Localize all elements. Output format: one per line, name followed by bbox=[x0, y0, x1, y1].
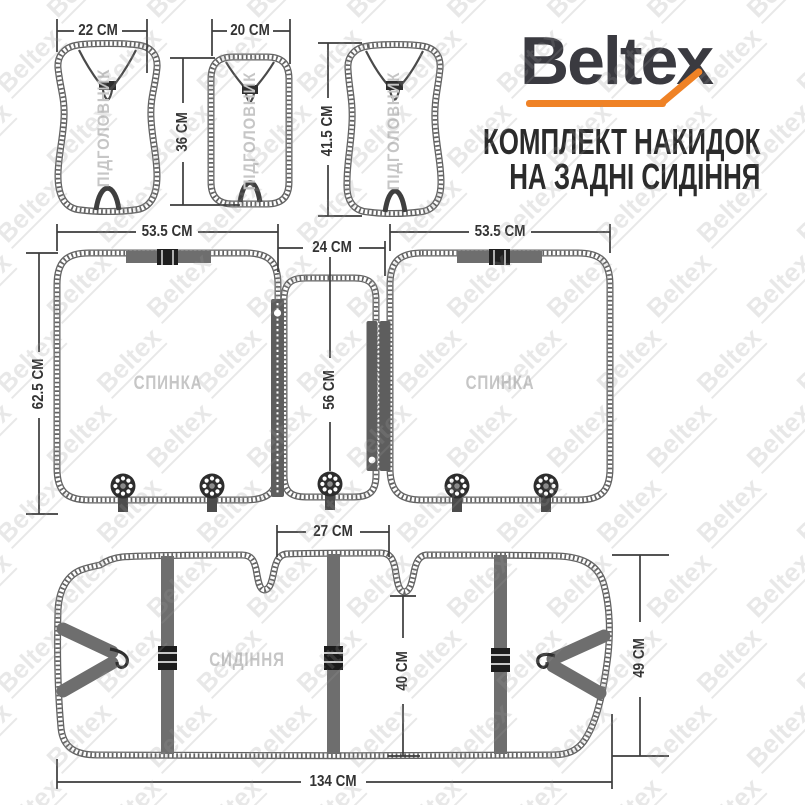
product-title: КОМПЛЕКТ НАКИДОК НА ЗАДНІ СИДІННЯ bbox=[375, 124, 760, 194]
label-layer: 22 CM 20 CM 36 CM 41.5 CM 53.5 CM 24 CM … bbox=[0, 0, 805, 805]
logo-underline-swoosh bbox=[526, 100, 666, 107]
product-dimension-diagram: 22 CM 20 CM 36 CM 41.5 CM 53.5 CM 24 CM … bbox=[0, 0, 805, 805]
seat-label: СИДІННЯ bbox=[209, 650, 284, 672]
dim-headrest2-width: 20 CM bbox=[230, 22, 270, 40]
dim-backrest-left-width: 53.5 CM bbox=[142, 223, 193, 241]
dim-backrest-right-width: 53.5 CM bbox=[475, 223, 526, 241]
dim-middle-height: 56 CM bbox=[321, 370, 339, 410]
dim-headrest3-height: 41.5 CM bbox=[319, 106, 337, 157]
backrest-left-label: СПИНКА bbox=[134, 373, 203, 395]
dim-seat-center-height: 40 CM bbox=[394, 651, 412, 691]
dim-headrest1-width: 22 CM bbox=[78, 22, 118, 40]
product-title-line2: НА ЗАДНІ СИДІННЯ bbox=[482, 159, 760, 194]
dim-middle-width: 24 CM bbox=[312, 239, 352, 257]
dim-seat-total-width: 134 CM bbox=[309, 773, 356, 791]
headrest-1-label: ПІДГОЛОВНИК bbox=[94, 69, 114, 187]
product-title-line1: КОМПЛЕКТ НАКИДОК bbox=[482, 124, 760, 159]
backrest-right-label: СПИНКА bbox=[466, 373, 535, 395]
headrest-2-label: ПІДГОЛОВНИК bbox=[240, 72, 260, 190]
dim-seat-gap: 27 CM bbox=[313, 523, 353, 541]
dim-seat-right-height: 49 CM bbox=[631, 638, 649, 678]
dim-backrest-left-height: 62.5 CM bbox=[30, 359, 48, 410]
dim-headrest2-height: 36 CM bbox=[174, 112, 192, 152]
